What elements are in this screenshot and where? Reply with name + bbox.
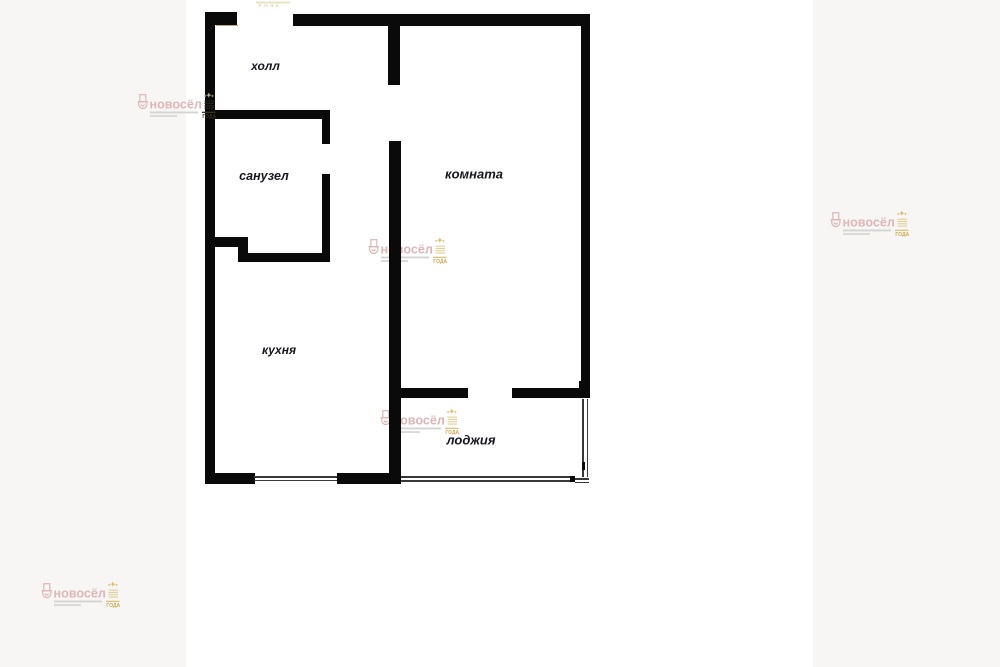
svg-text:новосёл: новосёл [150,97,202,111]
svg-text:новосёл: новосёл [843,215,895,229]
svg-text:ГОДА: ГОДА [433,259,447,265]
svg-text:ГОДА: ГОДА [106,603,120,609]
svg-text:ГОДА: ГОДА [259,5,282,7]
svg-text:ГОДА: ГОДА [202,114,216,120]
svg-text:ГОДА: ГОДА [895,232,909,238]
svg-text:новосёл: новосёл [54,586,106,600]
